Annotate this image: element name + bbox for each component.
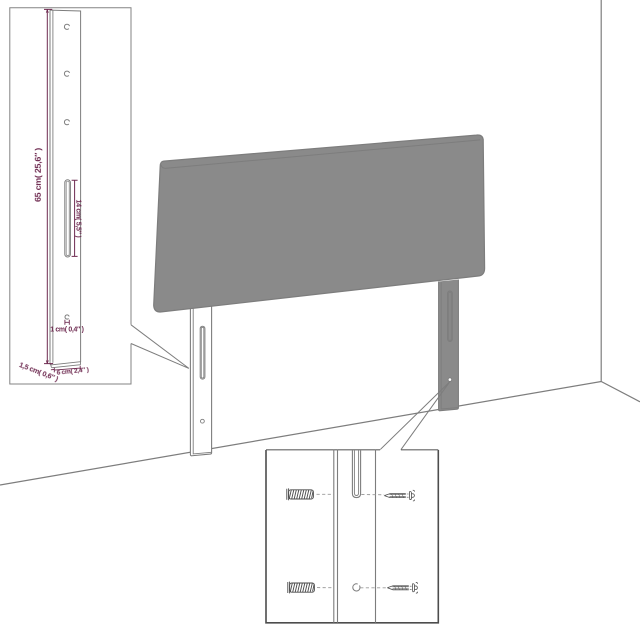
- svg-text:65 cm( 25,6″ ): 65 cm( 25,6″ ): [34, 147, 43, 202]
- svg-text:1 cm( 0,4″ ): 1 cm( 0,4″ ): [50, 327, 83, 334]
- svg-text:14 cm( 5,5″ ): 14 cm( 5,5″ ): [74, 200, 81, 238]
